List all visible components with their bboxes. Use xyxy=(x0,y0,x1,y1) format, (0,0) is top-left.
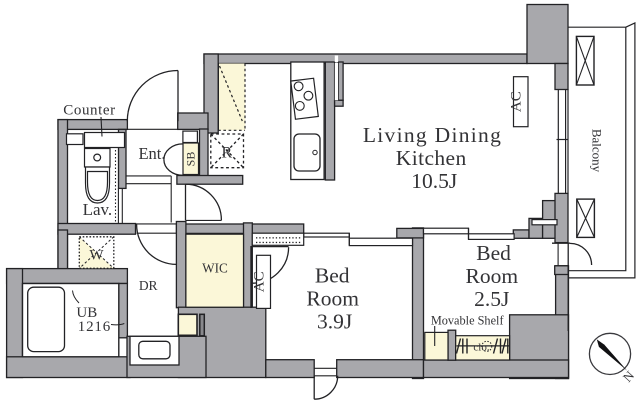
svg-text:Room: Room xyxy=(306,287,359,311)
svg-text:1216: 1216 xyxy=(78,319,111,335)
svg-text:Ent.: Ent. xyxy=(138,144,165,163)
svg-text:Lav.: Lav. xyxy=(83,200,113,219)
svg-text:10.5J: 10.5J xyxy=(411,169,457,193)
svg-text:Living Dining: Living Dining xyxy=(363,123,502,147)
svg-text:DR: DR xyxy=(139,278,158,293)
svg-text:Bed: Bed xyxy=(476,241,511,265)
svg-text:3.9J: 3.9J xyxy=(317,309,352,333)
svg-text:AC: AC xyxy=(252,271,268,292)
svg-text:W: W xyxy=(89,248,104,264)
svg-text:Balcony: Balcony xyxy=(590,129,605,173)
svg-text:Movable Shelf: Movable Shelf xyxy=(431,313,505,327)
svg-text:Bed: Bed xyxy=(315,264,350,288)
svg-text:R: R xyxy=(221,145,232,162)
svg-text:clo.: clo. xyxy=(473,341,489,353)
svg-text:Kitchen: Kitchen xyxy=(396,146,467,170)
svg-text:Counter: Counter xyxy=(63,102,116,118)
svg-text:SB: SB xyxy=(184,152,198,167)
svg-text:Room: Room xyxy=(466,264,519,288)
svg-text:AC: AC xyxy=(509,91,525,112)
svg-text:WIC: WIC xyxy=(202,261,228,276)
svg-text:2.5J: 2.5J xyxy=(474,287,509,311)
